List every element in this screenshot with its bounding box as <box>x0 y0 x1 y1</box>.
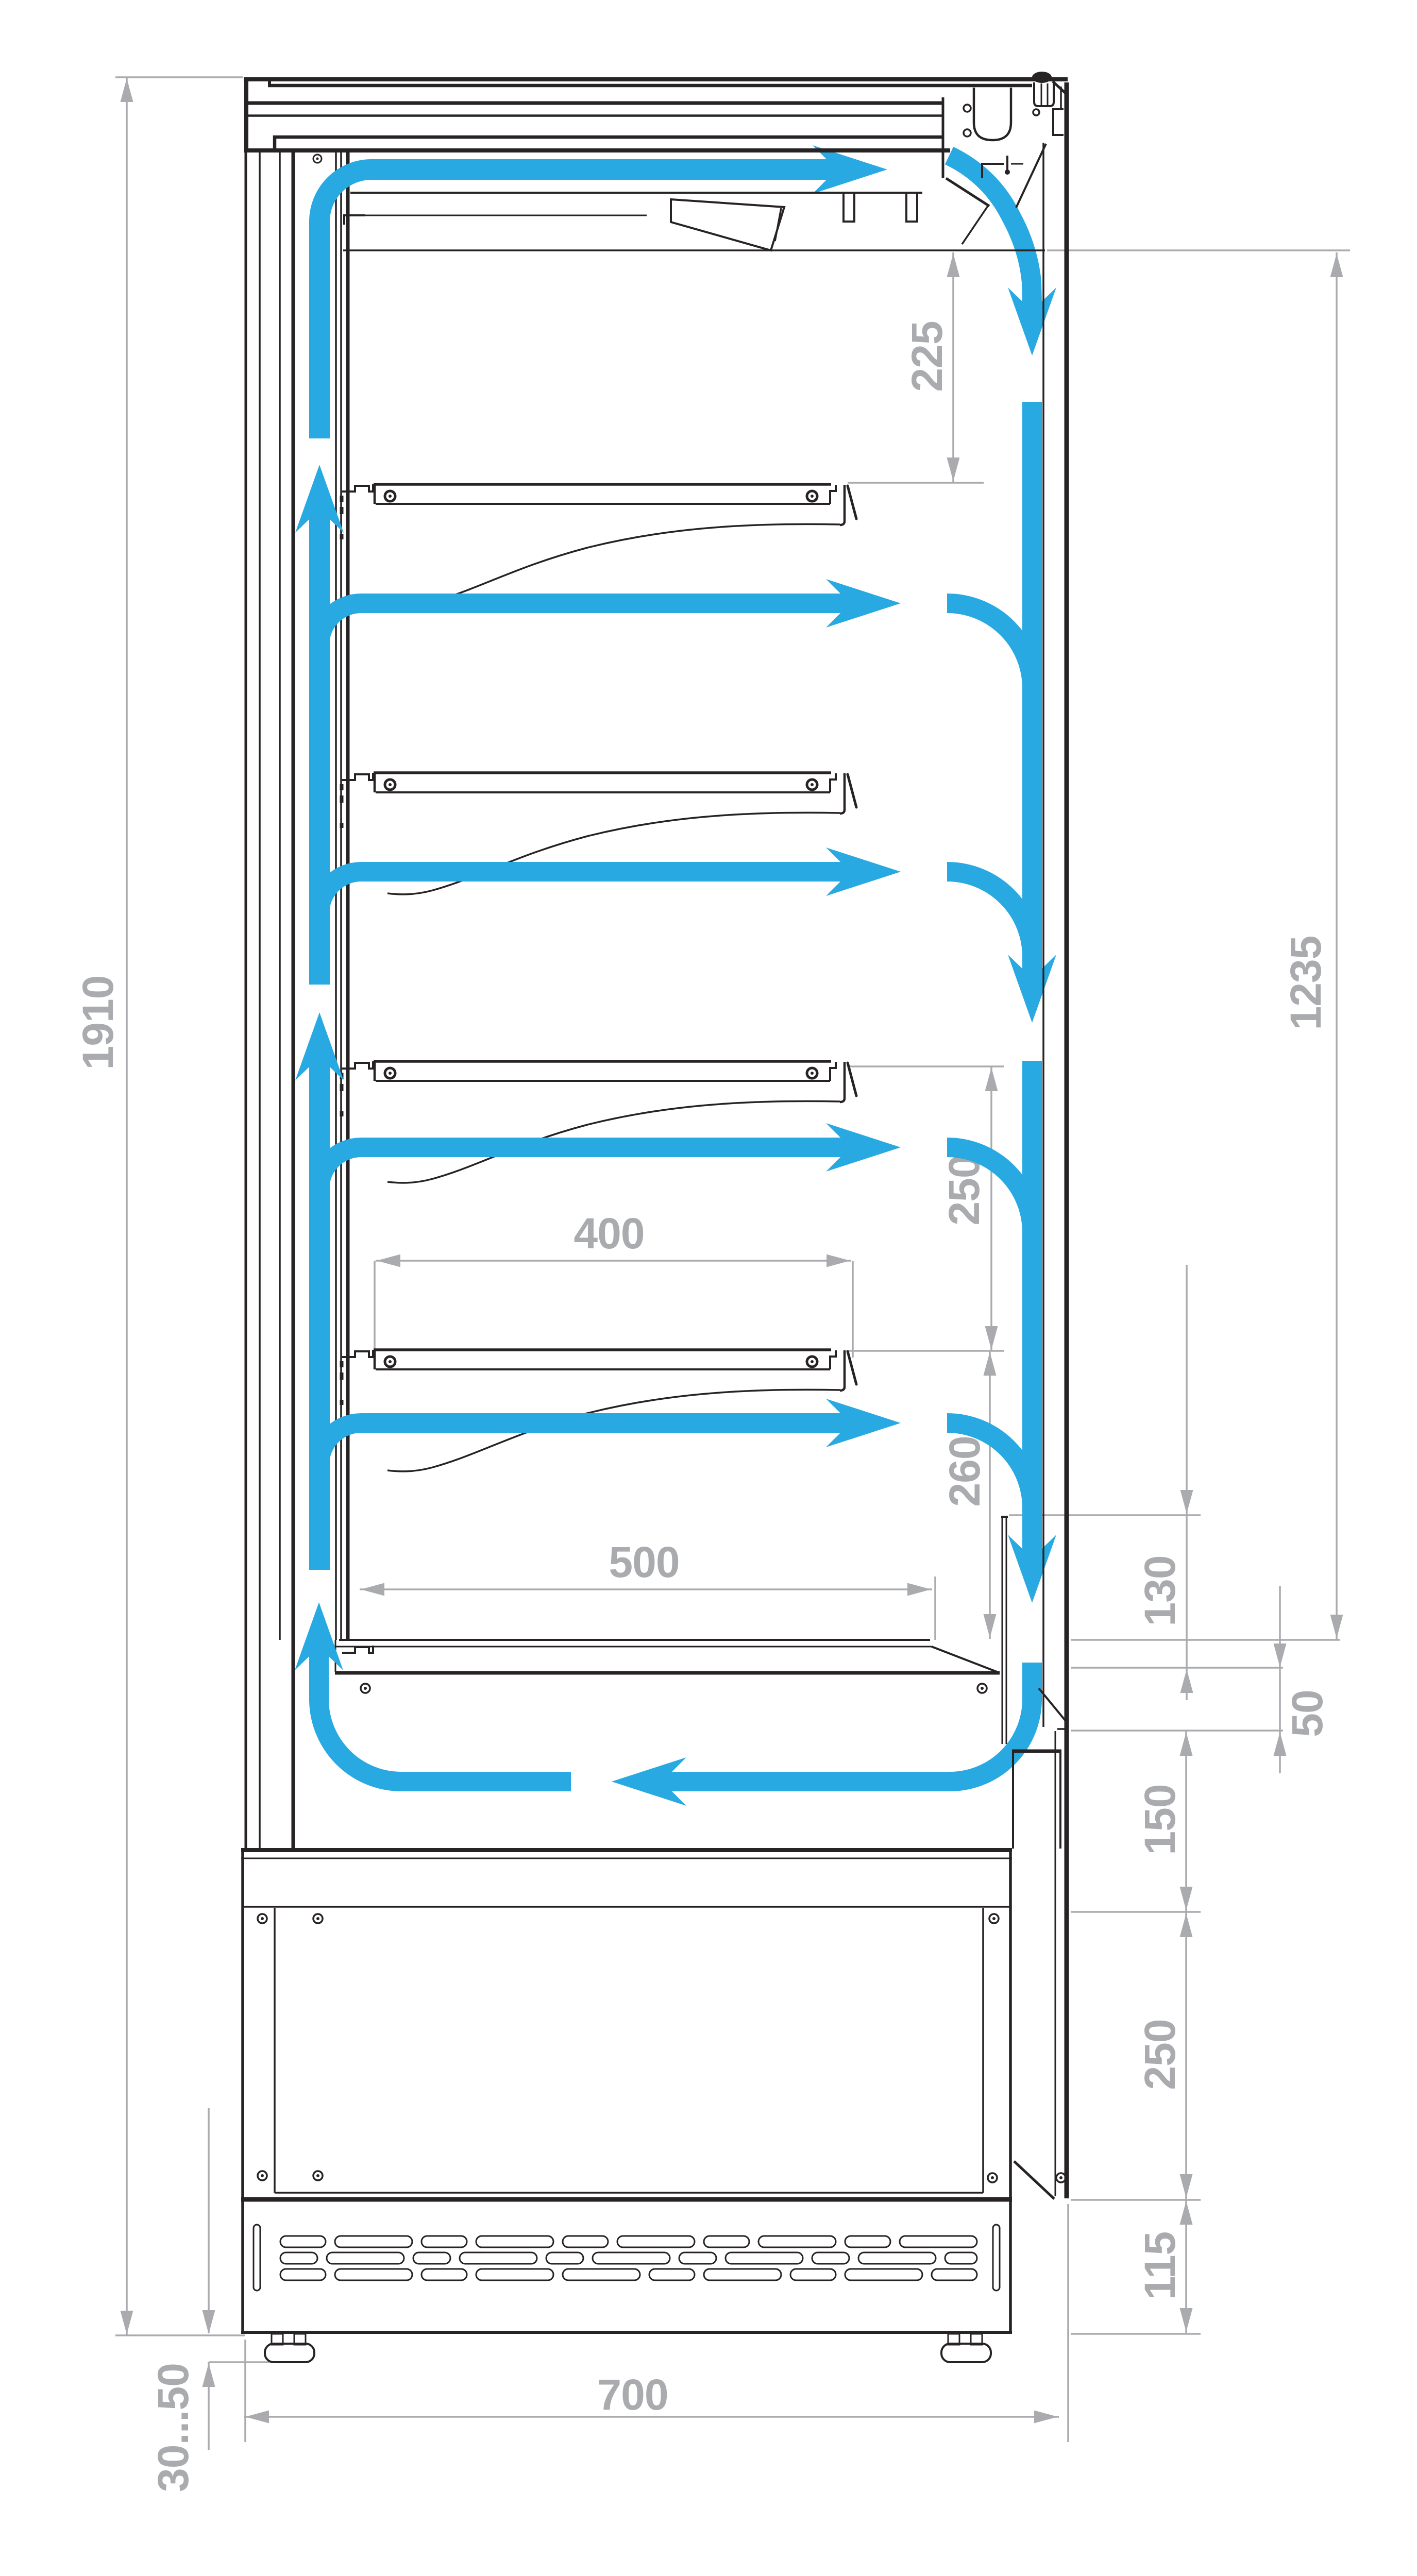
svg-text:500: 500 <box>609 1538 679 1586</box>
svg-text:260: 260 <box>940 1436 989 1506</box>
svg-text:30...50: 30...50 <box>149 2363 197 2492</box>
svg-text:700: 700 <box>597 2370 668 2419</box>
svg-text:1910: 1910 <box>74 976 122 1070</box>
svg-text:250: 250 <box>1136 2019 1184 2090</box>
svg-text:150: 150 <box>1136 1784 1184 1855</box>
svg-text:400: 400 <box>573 1209 644 1258</box>
svg-text:225: 225 <box>903 321 951 392</box>
svg-text:250: 250 <box>940 1155 988 1225</box>
svg-text:115: 115 <box>1136 2232 1184 2300</box>
svg-text:50: 50 <box>1283 1690 1331 1737</box>
svg-text:130: 130 <box>1136 1555 1184 1626</box>
svg-text:1235: 1235 <box>1281 936 1330 1030</box>
